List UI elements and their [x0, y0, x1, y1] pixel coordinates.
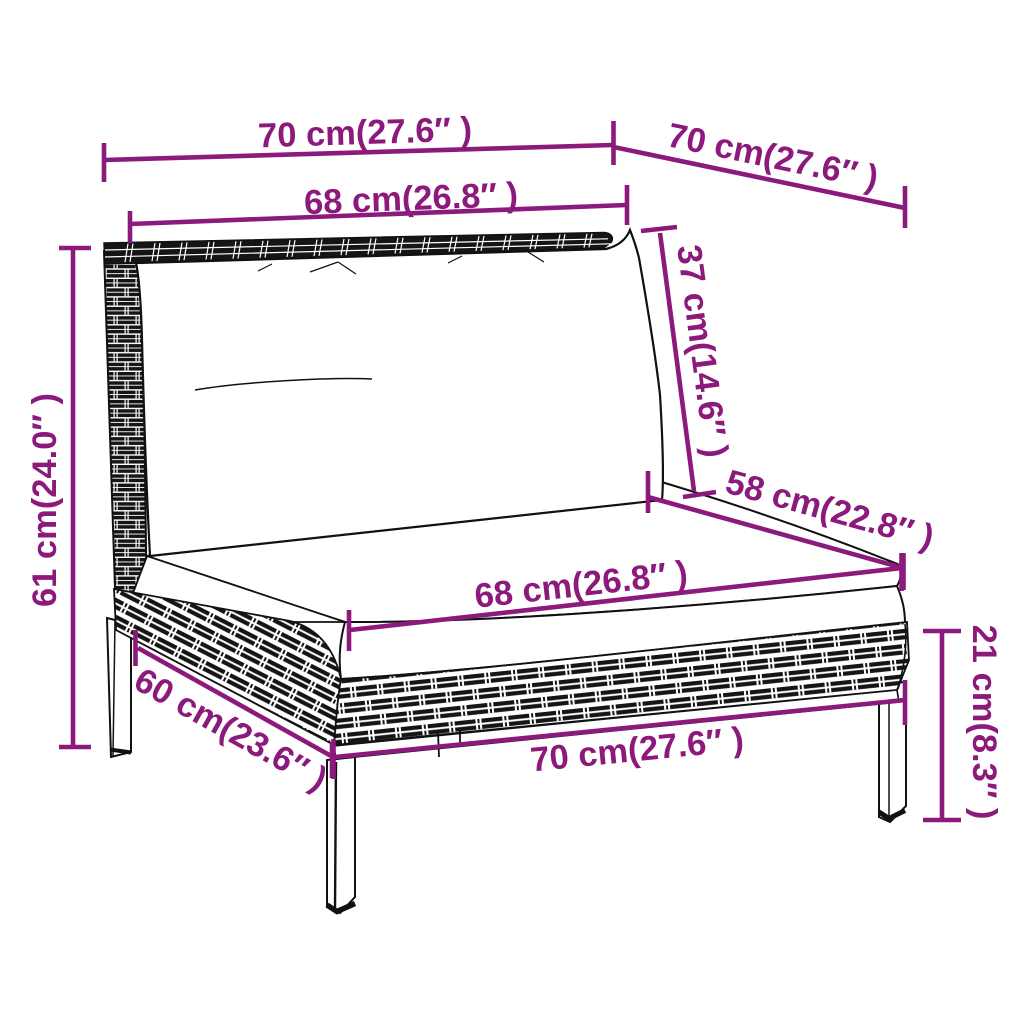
svg-text:21 cm(8.3″ ): 21 cm(8.3″ ) [965, 625, 1003, 820]
svg-text:61 cm(24.0″ ): 61 cm(24.0″ ) [26, 393, 64, 607]
svg-text:70 cm(27.6″ ): 70 cm(27.6″ ) [257, 111, 472, 156]
